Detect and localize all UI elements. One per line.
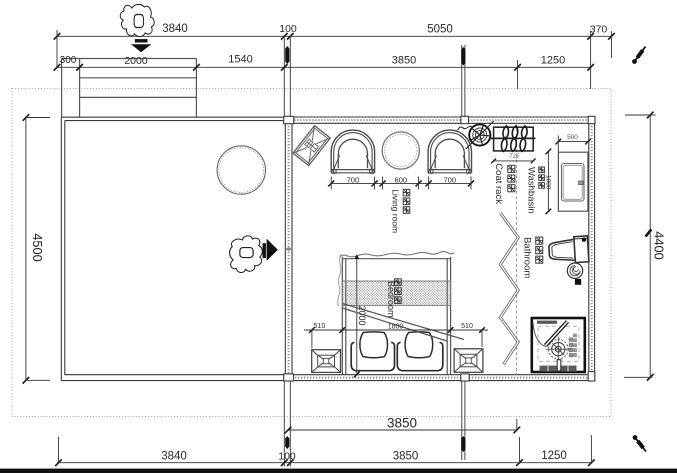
svg-text:1800: 1800 [388, 323, 404, 330]
svg-text:3850: 3850 [393, 451, 419, 463]
svg-text:4400: 4400 [652, 231, 667, 259]
svg-text:3850: 3850 [392, 55, 416, 67]
svg-text:370: 370 [590, 24, 608, 36]
svg-text:3850: 3850 [387, 415, 417, 430]
svg-text:3840: 3840 [161, 451, 187, 463]
svg-text:510: 510 [461, 323, 473, 330]
svg-text:5050: 5050 [427, 24, 453, 36]
svg-text:500: 500 [567, 134, 578, 141]
svg-text:Coat rack: Coat rack [493, 163, 504, 204]
svg-text:1250: 1250 [541, 55, 565, 67]
svg-text:725: 725 [509, 154, 520, 160]
svg-text:700: 700 [347, 175, 360, 184]
svg-text:3840: 3840 [162, 23, 188, 35]
svg-text:2000: 2000 [124, 55, 148, 67]
svg-text:700: 700 [444, 175, 457, 184]
svg-text:1000: 1000 [544, 175, 551, 190]
svg-text:100: 100 [278, 451, 296, 463]
svg-text:300: 300 [60, 55, 77, 66]
svg-text:Bathroom: Bathroom [522, 237, 533, 278]
svg-text:Living room: Living room [391, 189, 401, 233]
svg-text:600: 600 [395, 175, 408, 184]
svg-text:100: 100 [279, 23, 297, 35]
svg-text:Bedroom: Bedroom [386, 281, 396, 318]
svg-text:Washbasin: Washbasin [526, 167, 537, 214]
svg-text:4500: 4500 [30, 233, 45, 261]
svg-text:1540: 1540 [228, 54, 252, 66]
svg-text:1250: 1250 [541, 450, 567, 462]
svg-text:510: 510 [314, 323, 326, 330]
